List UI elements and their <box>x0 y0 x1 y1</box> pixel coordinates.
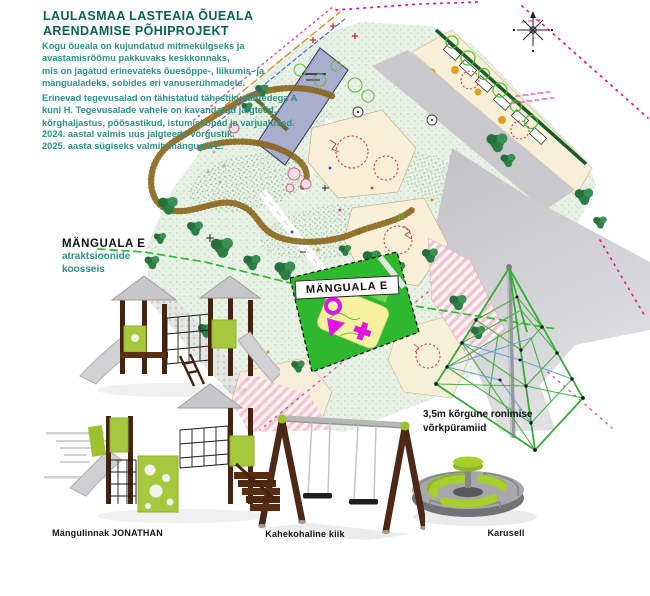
callout-title: MÄNGUALA E <box>62 238 146 250</box>
callout-line: atraktsioonide <box>62 250 146 263</box>
jonathan-view-top <box>80 276 280 386</box>
jonathan-render <box>52 268 280 526</box>
jonathan-label: Mängulinnak JONATHAN <box>40 528 175 538</box>
zones-line: kuni H. Tegevusalade vahele on kavandatu… <box>42 104 297 116</box>
timeline-line: 2025. aasta sügiseks valmib mänguala E. <box>42 140 235 152</box>
intro-line: mängualadeks, sobides eri vanuserühmadel… <box>42 77 264 89</box>
swing-label: Kahekohaline kiik <box>245 529 365 539</box>
carousel-label: Karusell <box>462 528 550 538</box>
pyramid-label-line: võrkpüramiid <box>423 422 532 436</box>
intro-line: Kogu õueala on kujundatud mitmekülgseks … <box>42 40 264 52</box>
zones-line: Erinevad tegevusalad on tähistatud tähes… <box>42 92 297 104</box>
title-line-1: LAULASMAA LASTEAIA ÕUEALA <box>43 9 253 24</box>
jonathan-view-bottom <box>70 384 280 512</box>
intro-line: mis on jagatud erinevateks õuesõppe-, li… <box>42 65 264 77</box>
intro-paragraph: Kogu õueala on kujundatud mitmekülgseks … <box>42 40 264 90</box>
swing-ropes <box>308 422 376 500</box>
pyramid-label: 3,5m kõrgune ronimise võrkpüramiid <box>423 408 532 435</box>
net-bridge <box>167 314 210 364</box>
timeline-paragraph: 2024. aastal valmis uus jalgteede võrgus… <box>42 128 235 153</box>
callout-line: koosseis <box>62 263 146 276</box>
pyramid-label-line: 3,5m kõrgune ronimise <box>423 408 532 422</box>
net-bridge-lower <box>180 426 228 468</box>
title-line-2: ARENDAMISE PÕHIPROJEKT <box>43 24 253 39</box>
play-area-callout: MÄNGUALA E atraktsioonide koosseis <box>62 238 146 276</box>
zones-paragraph: Erinevad tegevusalad on tähistatud tähes… <box>42 92 297 129</box>
intro-line: avastamisrõõmu pakkuvaks keskkonnaks, <box>42 52 264 64</box>
page-title: LAULASMAA LASTEAIA ÕUEALA ARENDAMISE PÕH… <box>43 9 253 38</box>
stairs <box>234 464 280 511</box>
project-sheet: R <box>0 0 650 596</box>
timeline-line: 2024. aastal valmis uus jalgteede võrgus… <box>42 128 235 140</box>
